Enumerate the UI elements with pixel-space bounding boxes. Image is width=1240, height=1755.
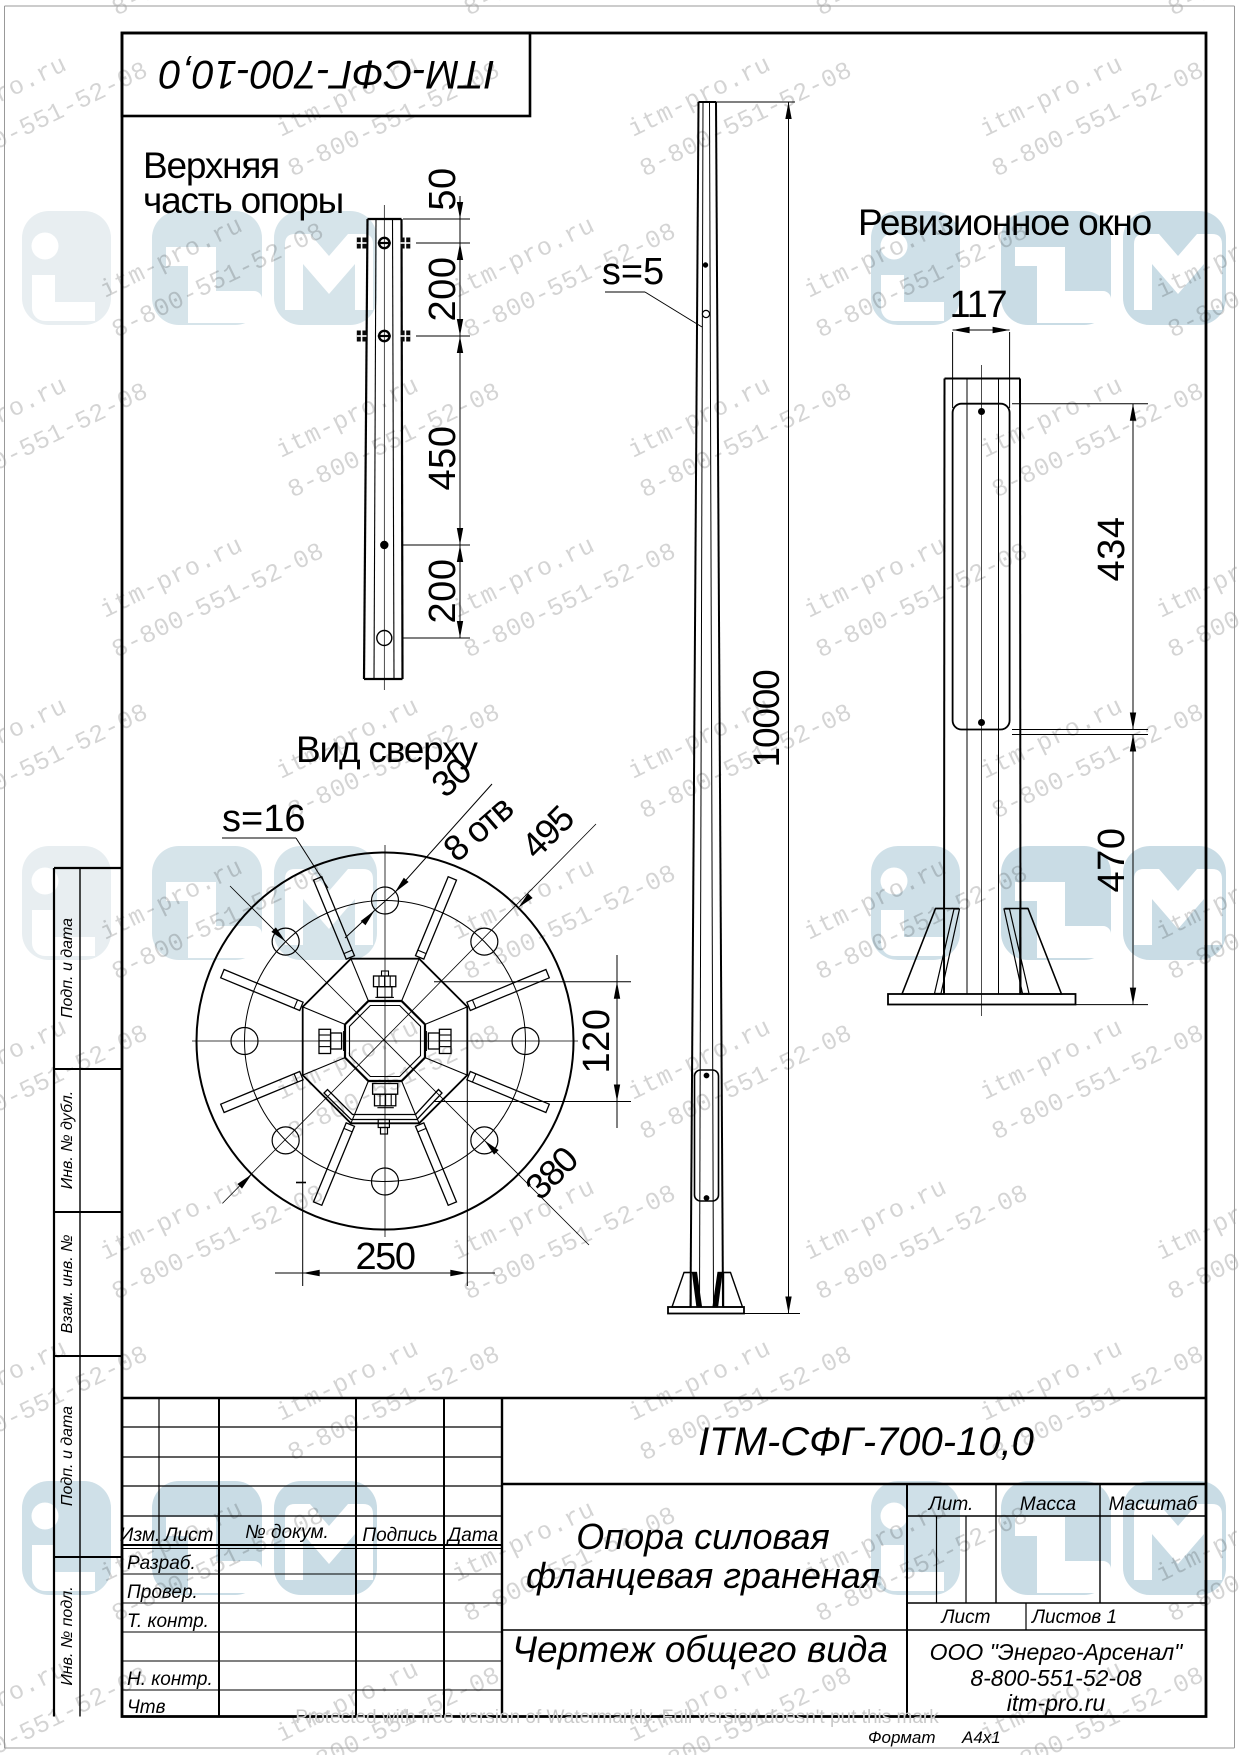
svg-text:Лист: Лист [940, 1607, 991, 1628]
svg-text:Protected with free version of: Protected with free version of Watermark… [295, 1707, 939, 1728]
svg-text:450: 450 [422, 426, 464, 491]
svg-text:8-800-551-52-08: 8-800-551-52-08 [970, 1665, 1142, 1691]
svg-text:200: 200 [422, 559, 464, 624]
svg-text:470: 470 [1091, 828, 1133, 893]
svg-text:434: 434 [1091, 517, 1133, 582]
svg-text:117: 117 [950, 284, 1007, 326]
svg-text:200: 200 [422, 257, 464, 322]
svg-text:ITM-СФГ-700-10,0: ITM-СФГ-700-10,0 [698, 1420, 1034, 1464]
svg-text:№ докум.: № докум. [245, 1522, 329, 1543]
svg-text:Листов 1: Листов 1 [1030, 1607, 1117, 1628]
svg-text:Масштаб: Масштаб [1109, 1494, 1199, 1515]
svg-text:120: 120 [576, 1009, 618, 1074]
svg-text:Инв. № дубл.: Инв. № дубл. [59, 1091, 76, 1189]
svg-text:Опора силовая: Опора силовая [576, 1516, 829, 1557]
svg-text:Провер.: Провер. [127, 1582, 198, 1603]
svg-text:s=16: s=16 [222, 798, 305, 840]
svg-text:itm-pro.ru: itm-pro.ru [1007, 1690, 1106, 1716]
svg-text:Подпись: Подпись [362, 1525, 437, 1546]
svg-text:Инв. № подл.: Инв. № подл. [59, 1586, 76, 1685]
svg-text:Ревизионное окно: Ревизионное окно [858, 202, 1152, 243]
svg-text:Т. контр.: Т. контр. [127, 1611, 209, 1632]
svg-text:Дата: Дата [446, 1525, 498, 1546]
svg-text:Разраб.: Разраб. [127, 1553, 196, 1574]
svg-text:Изм.: Изм. [120, 1525, 161, 1546]
svg-text:Подп. и дата: Подп. и дата [59, 918, 76, 1018]
svg-text:10000: 10000 [746, 670, 787, 768]
svg-text:Лист: Лист [163, 1525, 214, 1546]
svg-text:250: 250 [356, 1236, 415, 1278]
svg-text:Н. контр.: Н. контр. [127, 1669, 213, 1690]
svg-text:ООО "Энерго-Арсенал": ООО "Энерго-Арсенал" [930, 1639, 1185, 1665]
svg-text:Формат: Формат [868, 1728, 936, 1747]
svg-text:Чтв: Чтв [127, 1697, 166, 1718]
svg-text:Подп. и дата: Подп. и дата [59, 1406, 76, 1506]
svg-text:часть опоры: часть опоры [143, 180, 343, 221]
svg-text:Масса: Масса [1020, 1494, 1076, 1515]
svg-text:Лит.: Лит. [927, 1494, 974, 1515]
svg-text:Взам. инв. №: Взам. инв. № [59, 1235, 76, 1334]
svg-text:s=5: s=5 [602, 251, 664, 293]
svg-text:ITM-СФГ-700-10,0: ITM-СФГ-700-10,0 [159, 52, 495, 96]
svg-text:А4х1: А4х1 [961, 1728, 1001, 1747]
svg-text:фланцевая граненая: фланцевая граненая [526, 1555, 880, 1596]
svg-text:Чертеж общего вида: Чертеж общего вида [512, 1629, 888, 1670]
svg-text:50: 50 [422, 167, 464, 210]
